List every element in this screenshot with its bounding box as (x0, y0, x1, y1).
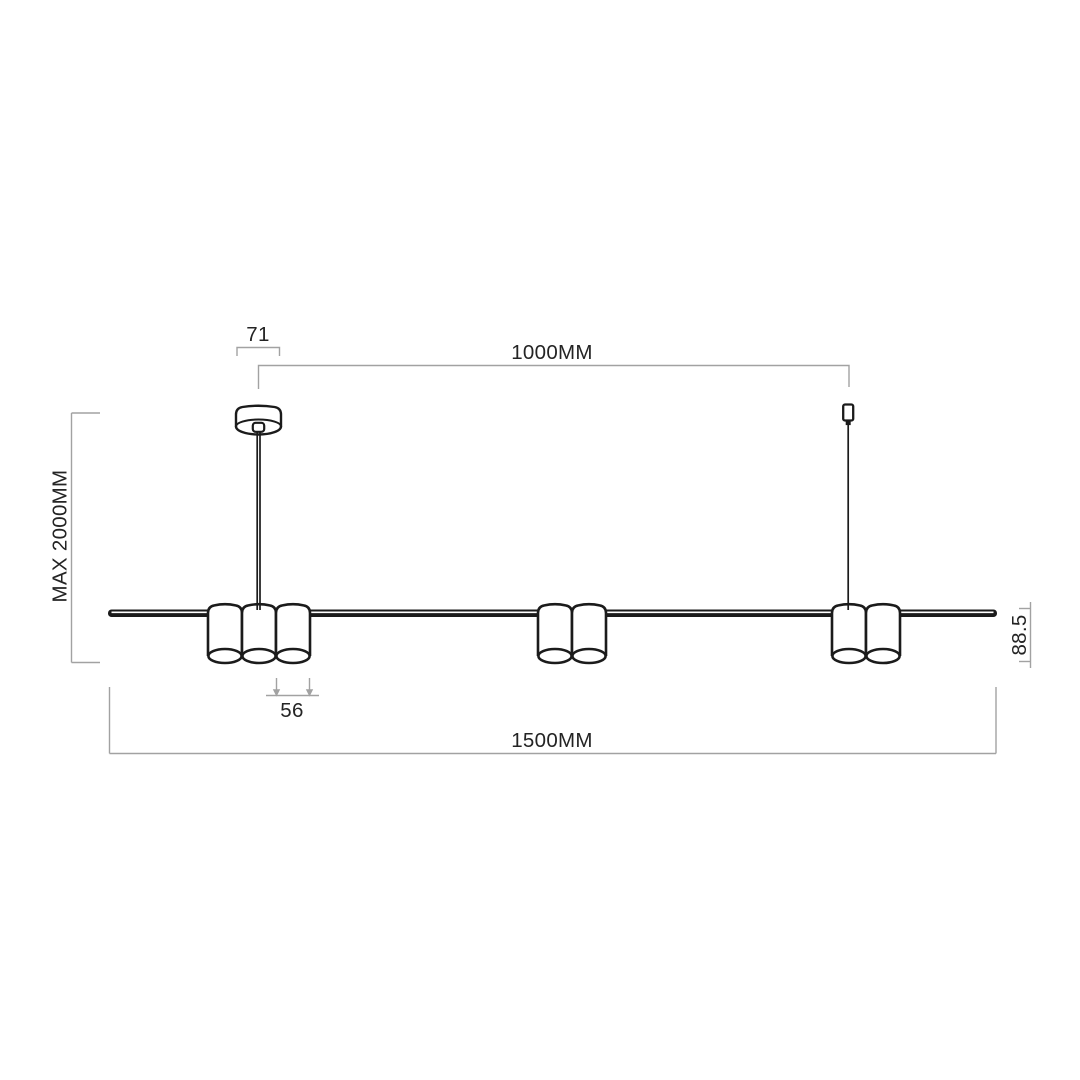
label-fixture-length: 1500MM (511, 729, 593, 752)
spot-group-middle (538, 604, 606, 663)
lamp-drawing (108, 405, 997, 664)
label-spot-diameter: 56 (280, 699, 303, 722)
dimension-labels: 71 1000MM MAX 2000MM 88.5 56 1500MM (49, 323, 1032, 752)
dim-bracket-canopy-width (237, 348, 280, 357)
label-spot-height: 88.5 (1008, 614, 1031, 655)
label-max-drop: MAX 2000MM (49, 470, 72, 603)
dim-line-spot-diameter (266, 678, 319, 697)
suspension-rod (257, 430, 260, 610)
dim-line-suspension-span (259, 366, 850, 390)
spot-group-right (832, 604, 900, 663)
label-suspension-span: 1000MM (511, 341, 593, 364)
technical-drawing-canvas: 71 1000MM MAX 2000MM 88.5 56 1500MM (0, 0, 1080, 1080)
spot-group-left (208, 604, 310, 663)
dimension-lines (72, 348, 1031, 754)
dim-line-max-drop (72, 413, 101, 663)
ceiling-canopy (236, 406, 281, 435)
cable-grip (843, 405, 853, 611)
pendant-lamp-dimension-drawing: 71 1000MM MAX 2000MM 88.5 56 1500MM (0, 0, 1080, 1080)
label-canopy-width: 71 (246, 323, 269, 346)
